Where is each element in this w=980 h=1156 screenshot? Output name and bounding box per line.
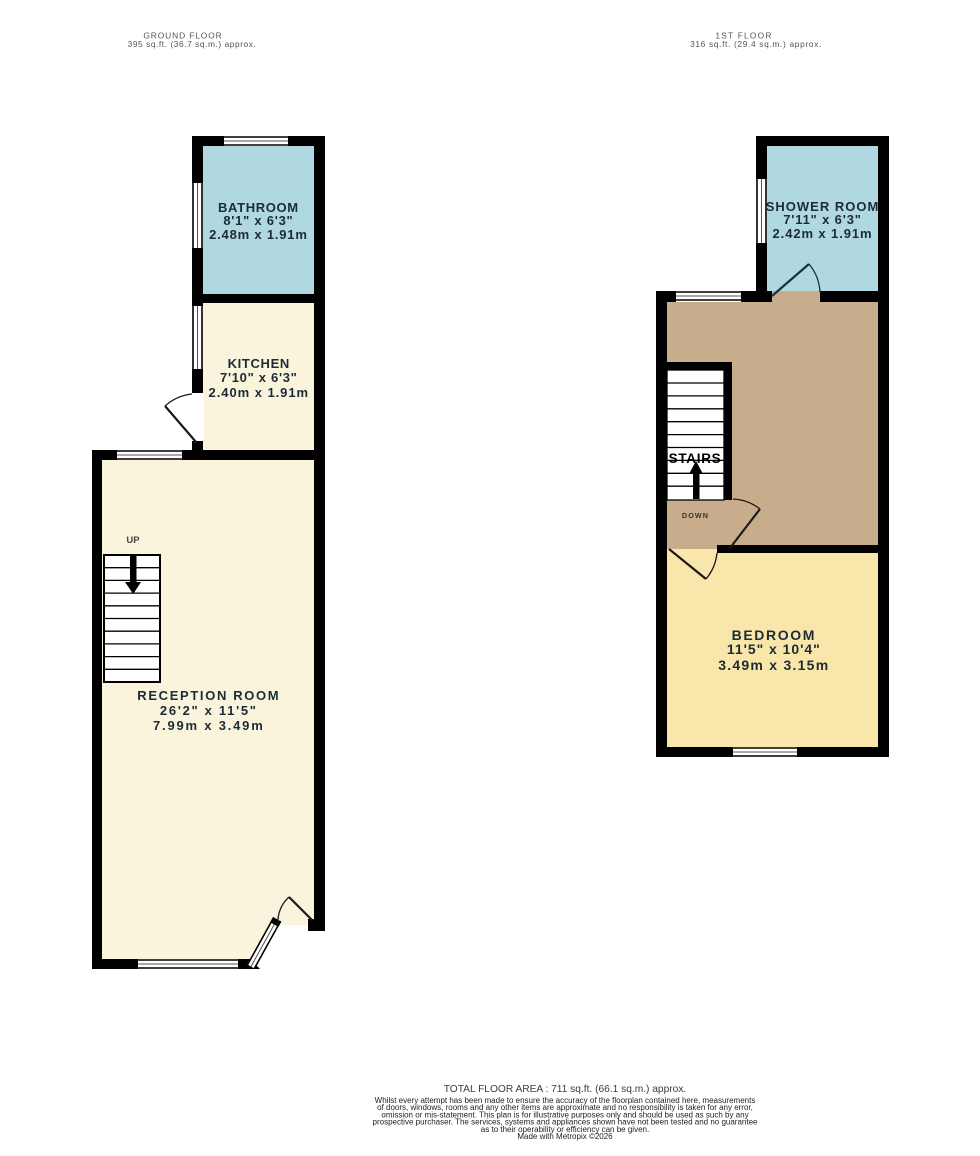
svg-text:STAIRS: STAIRS: [669, 451, 722, 466]
svg-text:DOWN: DOWN: [682, 511, 709, 520]
svg-text:3.49m x 3.15m: 3.49m x 3.15m: [718, 657, 829, 673]
svg-text:395 sq.ft. (36.7 sq.m.) approx: 395 sq.ft. (36.7 sq.m.) approx.: [128, 39, 257, 49]
svg-text:Made with Metropix ©2026: Made with Metropix ©2026: [517, 1132, 613, 1141]
svg-text:26'2" x 11'5": 26'2" x 11'5": [160, 703, 258, 718]
svg-text:316 sq.ft. (29.4 sq.m.) approx: 316 sq.ft. (29.4 sq.m.) approx.: [690, 39, 822, 49]
svg-text:RECEPTION ROOM: RECEPTION ROOM: [137, 688, 280, 703]
svg-text:7'11" x 6'3": 7'11" x 6'3": [783, 212, 862, 227]
svg-text:2.42m x 1.91m: 2.42m x 1.91m: [773, 226, 873, 241]
svg-text:8'1" x 6'3": 8'1" x 6'3": [223, 213, 293, 228]
svg-text:KITCHEN: KITCHEN: [228, 356, 290, 371]
svg-text:11'5" x 10'4": 11'5" x 10'4": [727, 641, 821, 657]
svg-text:7.99m x 3.49m: 7.99m x 3.49m: [153, 718, 265, 733]
svg-text:2.40m x 1.91m: 2.40m x 1.91m: [209, 385, 310, 400]
svg-text:2.48m x 1.91m: 2.48m x 1.91m: [209, 227, 308, 242]
svg-text:TOTAL FLOOR AREA : 711 sq.ft.: TOTAL FLOOR AREA : 711 sq.ft. (66.1 sq.m…: [444, 1084, 687, 1095]
svg-text:7'10" x 6'3": 7'10" x 6'3": [220, 370, 298, 385]
svg-text:UP: UP: [126, 535, 140, 546]
